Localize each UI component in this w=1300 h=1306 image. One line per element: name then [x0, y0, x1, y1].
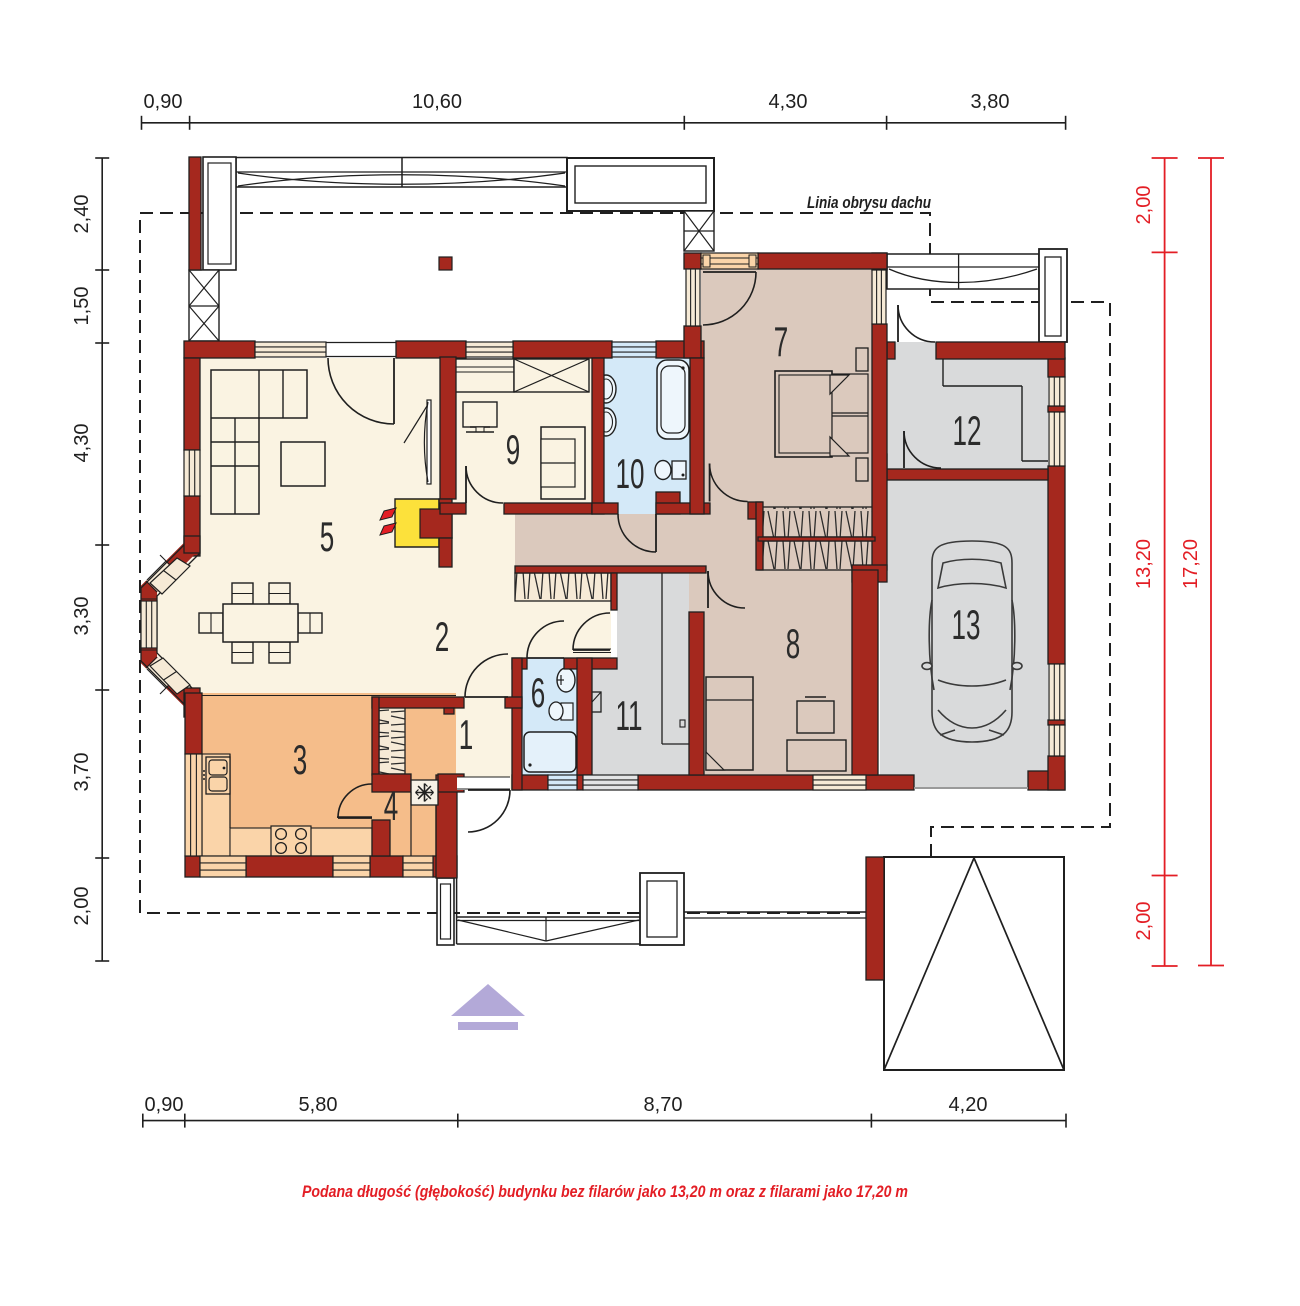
svg-text:13: 13: [952, 602, 981, 649]
svg-text:11: 11: [615, 693, 642, 740]
svg-text:4,30: 4,30: [71, 424, 93, 463]
svg-text:8: 8: [786, 621, 800, 668]
svg-text:3,30: 3,30: [71, 597, 93, 636]
svg-text:0,90: 0,90: [145, 1094, 184, 1116]
svg-text:2,40: 2,40: [71, 195, 93, 234]
svg-text:0,90: 0,90: [144, 91, 183, 113]
svg-text:2,00: 2,00: [71, 887, 93, 926]
svg-text:Linia obrysu dachu: Linia obrysu dachu: [807, 193, 931, 212]
svg-text:4,20: 4,20: [949, 1094, 988, 1116]
svg-text:13,20: 13,20: [1133, 539, 1155, 589]
svg-text:5,80: 5,80: [299, 1094, 338, 1116]
svg-text:8,70: 8,70: [644, 1094, 683, 1116]
svg-text:2,00: 2,00: [1133, 902, 1155, 941]
svg-text:5: 5: [320, 514, 334, 561]
svg-text:2,00: 2,00: [1133, 186, 1155, 225]
svg-text:Podana długość (głębokość) bud: Podana długość (głębokość) budynku bez f…: [302, 1182, 908, 1201]
svg-text:6: 6: [531, 670, 545, 717]
svg-text:1: 1: [459, 712, 473, 759]
svg-text:10,60: 10,60: [412, 91, 462, 113]
svg-text:3,80: 3,80: [971, 91, 1010, 113]
svg-text:17,20: 17,20: [1180, 539, 1202, 589]
svg-text:9: 9: [506, 427, 520, 474]
svg-text:7: 7: [774, 319, 788, 366]
svg-text:1,50: 1,50: [71, 287, 93, 326]
svg-text:10: 10: [616, 451, 645, 498]
svg-text:4,30: 4,30: [769, 91, 808, 113]
svg-text:2: 2: [435, 614, 449, 661]
svg-text:4: 4: [384, 783, 398, 830]
svg-text:3,70: 3,70: [71, 753, 93, 792]
svg-text:3: 3: [293, 737, 307, 784]
svg-text:12: 12: [953, 408, 982, 455]
